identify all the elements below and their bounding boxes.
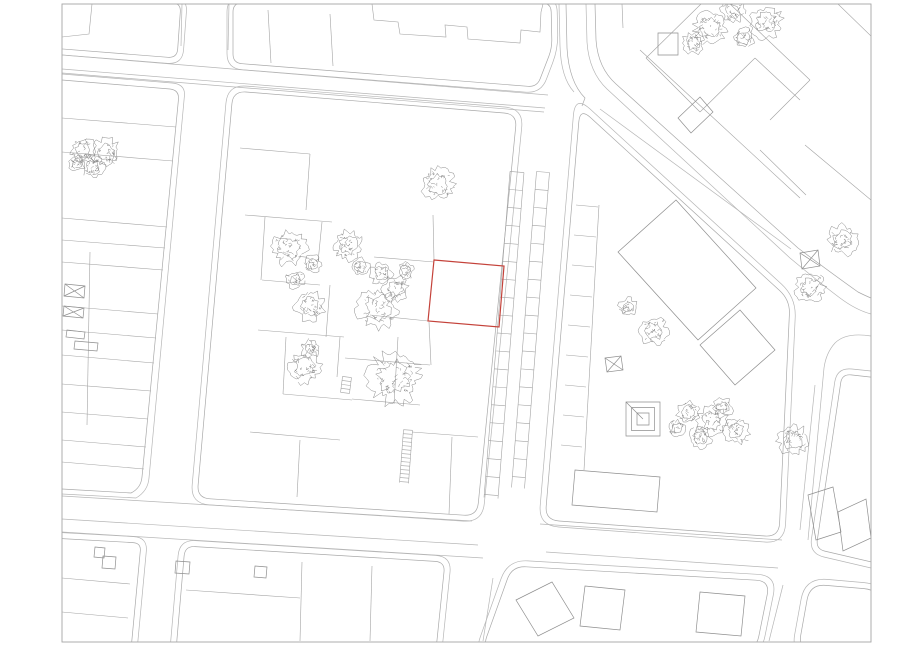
street-line <box>800 385 815 530</box>
street-line <box>808 335 871 540</box>
block-outline <box>48 3 180 57</box>
building-footprint <box>74 341 98 351</box>
parcel-line <box>245 215 332 222</box>
tree-icon <box>750 7 785 40</box>
parcel-line <box>306 154 310 210</box>
parcel-line <box>412 432 478 437</box>
parcel-line <box>561 445 582 447</box>
street-line <box>769 585 783 641</box>
parcel-line <box>186 590 300 598</box>
parcel-line <box>62 355 154 363</box>
tree-icon <box>333 229 362 263</box>
parcel-line <box>449 437 452 514</box>
parcel-line <box>770 80 810 120</box>
tree-icon <box>354 290 399 332</box>
parcel-line <box>372 4 543 43</box>
parcel-line <box>370 566 372 641</box>
street-lines <box>62 4 871 641</box>
parcel-line <box>62 384 151 391</box>
curb-line <box>794 579 886 647</box>
curb-line <box>479 561 774 647</box>
block-outline <box>486 567 768 647</box>
parcel-line <box>646 58 700 112</box>
parcel-line <box>576 205 598 207</box>
parcel-line <box>268 10 271 63</box>
parcel-line <box>730 4 810 80</box>
building-footprint <box>618 200 756 340</box>
parcel-line <box>250 432 340 440</box>
curb-line <box>42 0 186 63</box>
tree-symbols <box>69 0 859 455</box>
curb-line <box>227 0 558 92</box>
crossed-box-diagonals <box>64 284 85 298</box>
parcel-line <box>370 315 428 321</box>
tree-icon <box>676 400 700 422</box>
parcel-line <box>337 337 340 377</box>
parcel-line <box>283 394 352 400</box>
parcel-line <box>352 399 420 405</box>
parcel-line <box>330 14 333 66</box>
street-line <box>62 73 544 112</box>
parcel-line <box>240 148 310 154</box>
curb-line <box>171 541 450 647</box>
parcel-line <box>62 4 92 37</box>
tree-icon <box>82 155 106 178</box>
building-footprint <box>254 566 267 578</box>
plan-symbols <box>63 171 820 498</box>
street-line <box>540 524 782 540</box>
parcel-line <box>262 280 320 285</box>
tree-icon <box>364 351 423 407</box>
street-line <box>600 109 791 249</box>
tree-icon <box>285 272 305 290</box>
parcel-line <box>62 462 144 469</box>
tree-icon <box>292 291 325 322</box>
hatched-strip-symbol <box>341 376 352 393</box>
tree-icon <box>618 297 637 315</box>
parcel-line <box>566 355 588 357</box>
building-footprint <box>580 586 625 630</box>
parcel-line <box>572 265 594 267</box>
parcel-line <box>700 58 755 112</box>
curb-line <box>811 369 886 569</box>
parcel-line <box>760 150 806 195</box>
parcel-line <box>570 295 592 297</box>
curb-line <box>44 532 146 647</box>
building-footprint <box>808 487 841 540</box>
building-footprint <box>678 97 713 133</box>
parcel-line <box>297 440 300 497</box>
tree-icon <box>734 27 755 47</box>
parcel-line <box>584 205 599 470</box>
curb-line <box>540 103 795 542</box>
parcel-line <box>563 415 584 417</box>
street-line <box>586 4 871 314</box>
parcel-line <box>62 118 176 127</box>
street-line <box>640 50 800 198</box>
map-frame <box>62 4 871 642</box>
street-line <box>483 578 493 641</box>
parcel-line <box>622 4 623 28</box>
parcel-line <box>62 262 163 270</box>
parcel-lines <box>62 4 871 641</box>
crossed-box-diagonals <box>605 356 623 372</box>
street-line <box>62 74 185 498</box>
building-footprint <box>572 470 660 512</box>
parcel-line <box>62 240 165 248</box>
parcel-line <box>283 337 286 394</box>
tree-icon <box>381 275 410 303</box>
tree-icon <box>827 223 859 257</box>
parcel-line <box>62 218 167 227</box>
parcel-line <box>374 257 434 262</box>
parcel-line <box>568 325 590 327</box>
tree-icon <box>775 424 808 455</box>
parcel-line <box>433 215 434 260</box>
building-footprint <box>838 499 871 551</box>
hatched-strip-symbol <box>400 430 413 484</box>
spiral-square-symbol <box>626 402 660 436</box>
tree-icon <box>369 262 394 284</box>
block-outline <box>198 92 516 515</box>
parcel-line <box>318 222 322 262</box>
block-outline <box>233 3 552 86</box>
parcel-line <box>326 285 330 337</box>
block-outline <box>50 538 140 647</box>
site-highlight[interactable] <box>428 260 504 327</box>
parcel-line <box>574 235 596 237</box>
tree-icon <box>683 32 705 55</box>
parcel-line <box>429 322 431 365</box>
street-line <box>62 532 483 558</box>
parcel-line <box>300 562 302 641</box>
street-line <box>62 496 472 521</box>
tree-icon <box>669 419 685 437</box>
tree-icon <box>722 419 751 445</box>
site-plan-map <box>0 0 915 647</box>
parcel-line <box>62 440 146 447</box>
parcel-line <box>87 252 90 425</box>
tree-icon <box>638 317 669 346</box>
parcel-line <box>565 385 586 387</box>
parcel-line <box>62 412 148 419</box>
parcel-line <box>62 578 130 584</box>
block-outline <box>177 547 444 647</box>
building-footprint <box>696 592 745 636</box>
street-line <box>62 519 478 545</box>
street-line <box>566 4 585 106</box>
hatched-strip-symbol <box>512 171 550 488</box>
parcel-line <box>394 337 398 404</box>
parcel-line <box>62 152 173 161</box>
parcel-line <box>345 358 430 365</box>
building-footprint <box>700 310 775 385</box>
block-outline <box>800 585 880 647</box>
street-line <box>546 552 778 568</box>
parcel-line <box>62 612 128 618</box>
site-plan-page <box>0 0 915 647</box>
street-line <box>181 4 182 46</box>
tree-icon <box>270 230 309 267</box>
building-footprint <box>516 582 574 636</box>
parcel-line <box>258 330 344 337</box>
parcel-line <box>805 145 871 200</box>
tree-icon <box>287 348 323 385</box>
building-footprints <box>66 33 871 636</box>
street-line <box>62 80 179 493</box>
street-line <box>228 4 229 50</box>
curb-line <box>192 86 522 521</box>
tree-icon <box>794 274 827 302</box>
tree-icon <box>421 166 457 200</box>
parcel-line <box>261 217 265 280</box>
tree-icon <box>69 155 85 171</box>
parcel-line <box>838 4 871 36</box>
